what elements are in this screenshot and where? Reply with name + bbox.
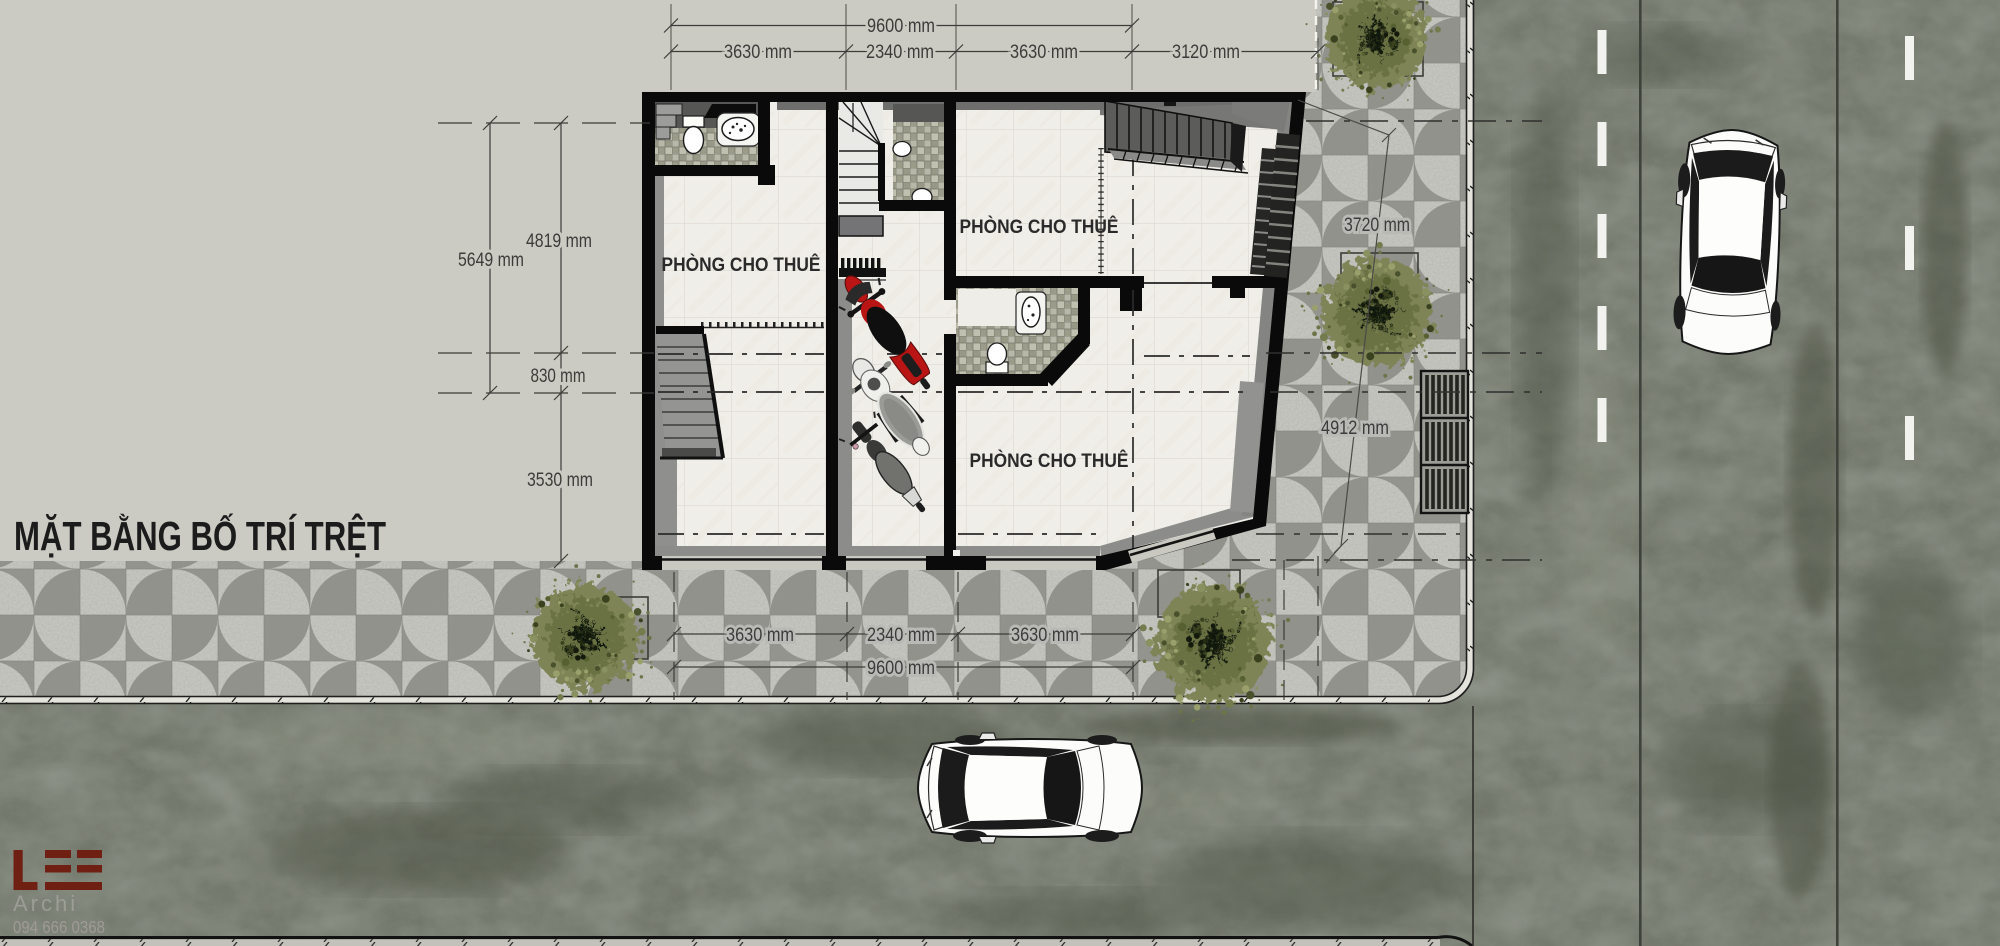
svg-text:2340 mm: 2340 mm bbox=[866, 42, 934, 63]
svg-text:4912 mm: 4912 mm bbox=[1321, 418, 1389, 439]
svg-text:3630 mm: 3630 mm bbox=[724, 42, 792, 63]
svg-text:9600 mm: 9600 mm bbox=[867, 16, 935, 37]
svg-text:3630 mm: 3630 mm bbox=[1010, 42, 1078, 63]
svg-text:3630 mm: 3630 mm bbox=[1011, 625, 1079, 646]
svg-text:PHÒNG CHO THUÊ: PHÒNG CHO THUÊ bbox=[662, 254, 821, 276]
svg-text:3630 mm: 3630 mm bbox=[726, 625, 794, 646]
svg-text:830 mm: 830 mm bbox=[531, 366, 586, 387]
svg-text:PHÒNG CHO THUÊ: PHÒNG CHO THUÊ bbox=[970, 450, 1129, 472]
svg-text:5649 mm: 5649 mm bbox=[458, 250, 524, 271]
svg-text:Archi: Archi bbox=[13, 891, 78, 916]
svg-text:3120 mm: 3120 mm bbox=[1172, 42, 1240, 63]
svg-text:MẶT BẰNG BỐ TRÍ TRỆT: MẶT BẰNG BỐ TRÍ TRỆT bbox=[14, 513, 386, 559]
svg-text:094 666 0368: 094 666 0368 bbox=[13, 917, 105, 937]
svg-text:2340 mm: 2340 mm bbox=[867, 625, 935, 646]
svg-text:PHÒNG CHO THUÊ: PHÒNG CHO THUÊ bbox=[960, 216, 1119, 238]
svg-text:4819 mm: 4819 mm bbox=[526, 231, 592, 252]
svg-text:9600 mm: 9600 mm bbox=[867, 658, 935, 679]
svg-text:3720 mm: 3720 mm bbox=[1344, 215, 1410, 236]
svg-text:3530 mm: 3530 mm bbox=[527, 470, 593, 491]
